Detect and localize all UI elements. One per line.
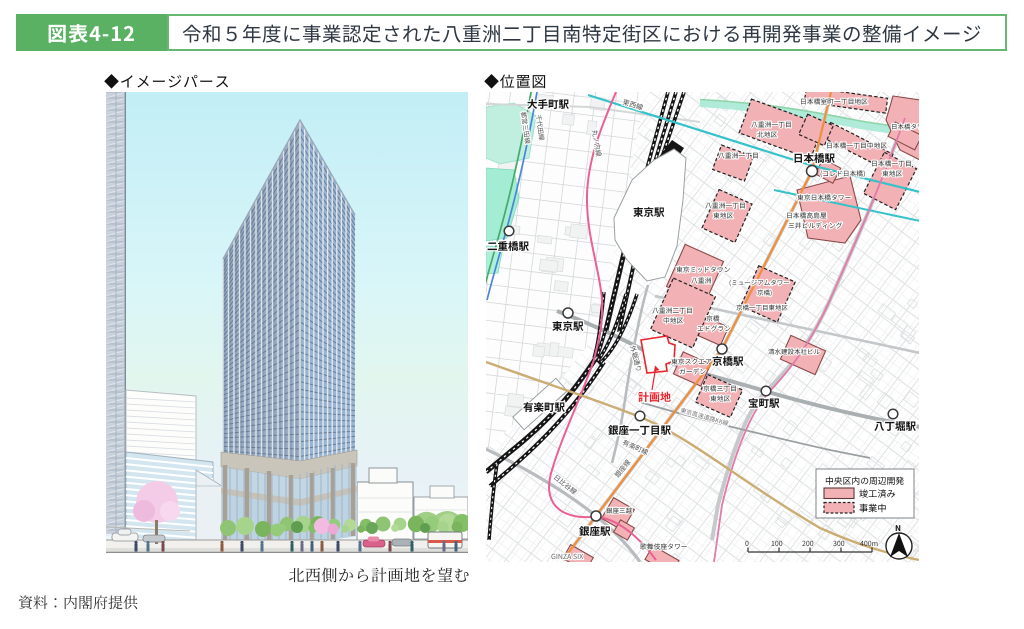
svg-text:日本橋タワー: 日本橋タワー [891,121,919,131]
svg-text:八重洲一丁目: 八重洲一丁目 [718,150,759,160]
svg-text:北地区: 北地区 [757,129,778,139]
svg-text:日本橋高島屋: 日本橋高島屋 [786,210,827,220]
svg-text:東京駅: 東京駅 [552,319,584,334]
svg-text:歌舞伎座タワー: 歌舞伎座タワー [640,541,688,551]
svg-text:宝町駅: 宝町駅 [748,396,780,411]
svg-text:京橋一丁目東地区: 京橋一丁目東地区 [736,302,789,312]
svg-text:東京ミッドタウン: 東京ミッドタウン [676,264,731,274]
svg-text:400m: 400m [860,539,878,549]
svg-text:二重橋駅: 二重橋駅 [487,239,529,254]
svg-text:200: 200 [802,539,814,549]
svg-text:八重洲二丁目: 八重洲二丁目 [652,305,693,315]
svg-text:東地区: 東地区 [710,393,731,403]
svg-text:八重洲: 八重洲 [691,275,712,285]
svg-text:銀座一丁目駅: 銀座一丁目駅 [608,423,671,438]
svg-text:竣工済み: 竣工済み [859,486,896,500]
svg-text:エドグラン: エドグラン [697,323,731,333]
svg-text:日本橋一丁目中地区: 日本橋一丁目中地区 [826,140,887,150]
svg-text:計画地: 計画地 [638,389,671,405]
svg-text:東京日本橋タワー: 東京日本橋タワー [797,192,852,202]
svg-text:0: 0 [745,539,749,549]
svg-text:(コレド日本橋): (コレド日本橋) [820,168,865,178]
svg-text:銀座駅: 銀座駅 [579,524,611,539]
svg-text:京橋三丁目: 京橋三丁目 [703,383,737,393]
svg-text:東京駅: 東京駅 [633,205,665,220]
svg-text:ガーデン: ガーデン [679,366,706,376]
svg-text:事業中: 事業中 [859,501,887,515]
svg-text:京橋: 京橋 [706,313,720,323]
svg-text:日本橋駅: 日本橋駅 [793,151,835,166]
svg-text:日本橋一丁目: 日本橋一丁目 [871,158,912,168]
svg-text:日本橋室町一丁目地区: 日本橋室町一丁目地区 [800,96,868,106]
svg-text:GINZA SIX: GINZA SIX [551,552,583,562]
svg-text:東地区: 東地区 [882,168,903,178]
svg-text:八重洲一丁目: 八重洲一丁目 [705,200,746,210]
svg-text:大手町駅: 大手町駅 [527,97,569,112]
svg-text:N: N [895,523,901,534]
svg-text:東京スクエア: 東京スクエア [671,356,712,366]
svg-text:(ミュージアムタワー: (ミュージアムタワー [729,277,790,287]
svg-text:東地区: 東地区 [713,210,734,220]
svg-text:京橋): 京橋) [757,287,772,297]
svg-text:八重洲一丁目: 八重洲一丁目 [751,119,792,129]
svg-text:清水建設本社ビル: 清水建設本社ビル [768,346,821,356]
svg-text:京橋駅: 京橋駅 [712,354,744,369]
svg-text:銀座三越: 銀座三越 [606,505,633,515]
svg-text:中地区: 中地区 [663,315,684,325]
svg-text:100: 100 [771,539,783,549]
svg-text:三井ビルディング: 三井ビルディング [788,220,843,230]
svg-text:八丁堀駅: 八丁堀駅 [874,419,916,434]
svg-text:300: 300 [833,539,845,549]
svg-text:有楽町駅: 有楽町駅 [523,400,565,415]
